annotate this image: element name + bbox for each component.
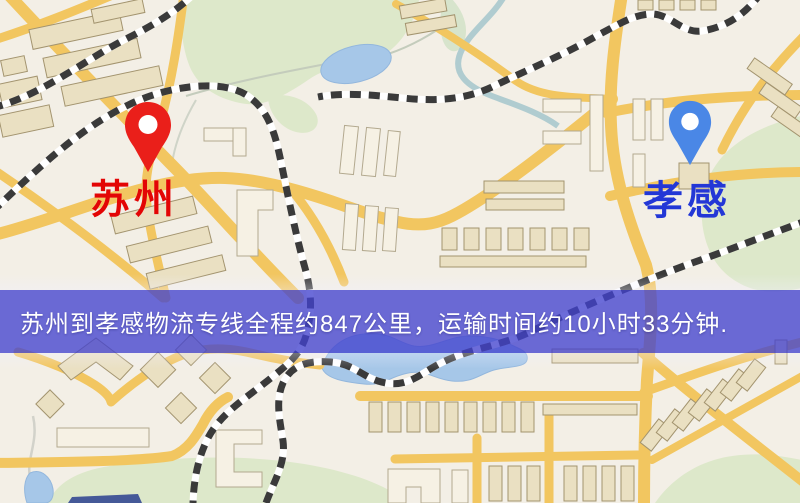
route-info-text: 苏州到孝感物流专线全程约847公里，运输时间约10小时33分钟. [0, 304, 728, 339]
map-screenshot: 苏州 孝感 苏州到孝感物流专线全程约847公里，运输时间约10小时33分钟. [0, 0, 800, 503]
destination-city-label: 孝感 [643, 181, 731, 221]
map-pin-icon [123, 101, 173, 174]
route-info-banner: 苏州到孝感物流专线全程约847公里，运输时间约10小时33分钟. [0, 290, 800, 353]
origin-pin-marker[interactable] [123, 101, 173, 174]
map-canvas[interactable] [0, 0, 800, 503]
destination-pin-marker[interactable] [667, 100, 713, 167]
origin-city-label: 苏州 [90, 180, 178, 220]
map-pin-icon [667, 100, 713, 167]
